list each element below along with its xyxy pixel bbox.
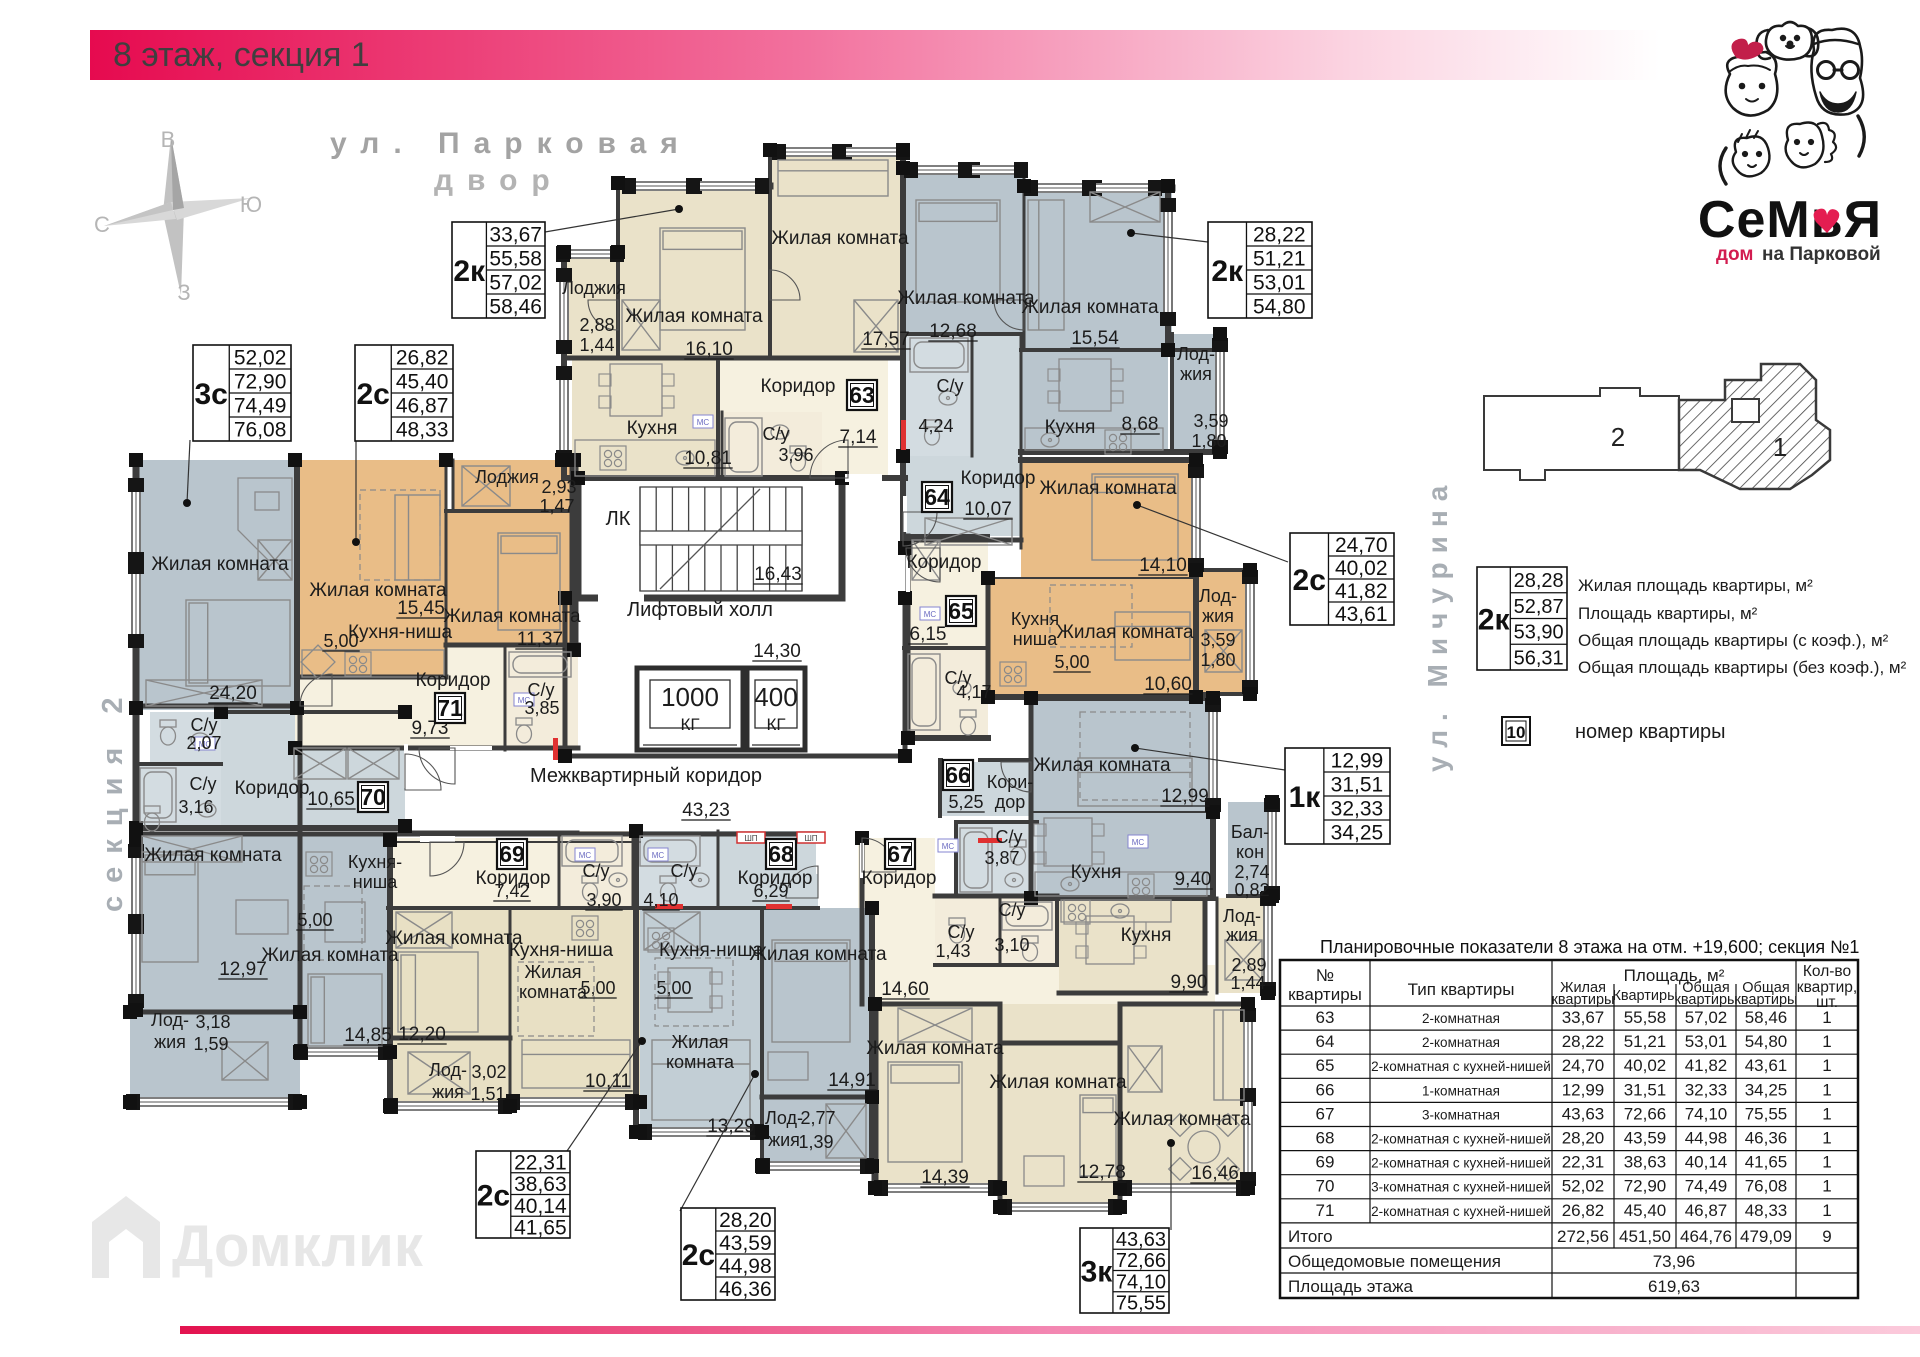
svg-text:Жилая комната: Жилая комната [1033, 755, 1171, 776]
svg-text:№: № [1316, 966, 1334, 985]
svg-text:комната: комната [519, 982, 588, 1002]
svg-text:Кори-: Кори- [987, 772, 1034, 792]
svg-text:1: 1 [1822, 1080, 1831, 1099]
svg-text:СеМьЯ: СеМьЯ [1698, 191, 1882, 249]
svg-text:46,87: 46,87 [1685, 1201, 1728, 1220]
svg-text:52,02: 52,02 [1562, 1177, 1605, 1196]
svg-text:68: 68 [1316, 1129, 1335, 1148]
svg-text:Кухня-: Кухня- [348, 852, 402, 872]
svg-text:10: 10 [1507, 723, 1526, 742]
svg-text:Лод-: Лод- [1177, 344, 1215, 364]
svg-text:Лод-: Лод- [429, 1060, 467, 1080]
svg-text:17,57: 17,57 [862, 329, 910, 350]
svg-text:41,82: 41,82 [1335, 580, 1388, 603]
svg-text:65: 65 [1316, 1056, 1335, 1075]
svg-text:5,00: 5,00 [1054, 652, 1089, 672]
svg-text:С/у: С/у [999, 900, 1026, 920]
svg-text:5,00: 5,00 [297, 910, 332, 930]
svg-text:Кухня-ниша: Кухня-ниша [659, 940, 764, 961]
svg-text:3,59: 3,59 [1200, 630, 1235, 650]
svg-text:3-комнатная с кухней-нишей: 3-комнатная с кухней-нишей [1371, 1180, 1551, 1195]
svg-text:жия: жия [1180, 364, 1212, 384]
svg-text:Коридор: Коридор [960, 468, 1035, 489]
svg-text:Коридор: Коридор [861, 868, 936, 889]
svg-text:63: 63 [849, 382, 875, 408]
svg-text:28,20: 28,20 [719, 1209, 772, 1232]
svg-text:65: 65 [948, 598, 974, 624]
svg-text:31,51: 31,51 [1331, 774, 1384, 797]
svg-text:жия: жия [1202, 606, 1234, 626]
svg-text:67: 67 [1316, 1104, 1335, 1123]
svg-text:1,39: 1,39 [798, 1132, 833, 1152]
svg-text:1,80: 1,80 [1191, 431, 1226, 451]
svg-text:Квартиры: Квартиры [1612, 988, 1677, 1004]
svg-text:КГ: КГ [680, 715, 699, 734]
svg-text:3с: 3с [194, 378, 227, 411]
svg-text:1: 1 [1822, 1104, 1831, 1123]
svg-text:Жилая комната: Жилая комната [897, 288, 1035, 309]
svg-text:кон: кон [1236, 842, 1264, 862]
svg-text:43,63: 43,63 [1116, 1229, 1166, 1251]
svg-text:14,30: 14,30 [753, 641, 801, 662]
svg-text:Коридор: Коридор [234, 778, 309, 799]
svg-text:1: 1 [1822, 1129, 1831, 1148]
svg-text:28,28: 28,28 [1514, 570, 1564, 592]
svg-text:75,55: 75,55 [1116, 1293, 1166, 1315]
svg-text:1: 1 [1822, 1177, 1831, 1196]
svg-text:10,60: 10,60 [1144, 674, 1192, 695]
svg-text:40,02: 40,02 [1624, 1056, 1667, 1075]
svg-text:С/у: С/у [996, 827, 1023, 847]
svg-text:68: 68 [768, 841, 794, 867]
svg-text:Жилая комната: Жилая комната [443, 606, 581, 627]
svg-text:2-комнатная с кухней-нишей: 2-комнатная с кухней-нишей [1371, 1156, 1551, 1171]
svg-text:С/у: С/у [671, 861, 698, 881]
svg-text:1-комнатная: 1-комнатная [1422, 1083, 1500, 1098]
svg-text:1,44: 1,44 [1230, 973, 1265, 993]
svg-text:15,45: 15,45 [397, 598, 445, 619]
svg-text:40,02: 40,02 [1335, 557, 1388, 580]
svg-text:45,40: 45,40 [396, 371, 449, 394]
svg-text:МС: МС [942, 842, 955, 851]
svg-text:2-комнатная с кухней-нишей: 2-комнатная с кухней-нишей [1371, 1059, 1551, 1074]
svg-text:16,10: 16,10 [685, 339, 733, 360]
svg-text:28,20: 28,20 [1562, 1129, 1605, 1148]
svg-text:1,51: 1,51 [470, 1084, 505, 1104]
svg-text:5,00: 5,00 [323, 631, 358, 651]
svg-text:4,24: 4,24 [918, 416, 953, 436]
svg-text:1,59: 1,59 [193, 1034, 228, 1054]
svg-text:71: 71 [437, 695, 463, 721]
svg-text:Лоджия: Лоджия [562, 278, 626, 298]
svg-text:619,63: 619,63 [1648, 1277, 1700, 1296]
svg-text:Жилая: Жилая [525, 962, 582, 982]
svg-text:53,90: 53,90 [1514, 622, 1564, 644]
svg-text:2с: 2с [477, 1179, 510, 1212]
svg-text:41,82: 41,82 [1685, 1056, 1728, 1075]
svg-text:Кол-во: Кол-во [1803, 963, 1851, 980]
svg-text:41,65: 41,65 [514, 1217, 567, 1240]
svg-text:2,88: 2,88 [579, 315, 614, 335]
svg-text:5,00: 5,00 [656, 978, 691, 998]
svg-text:69: 69 [1316, 1153, 1335, 1172]
svg-text:Жилая комната: Жилая комната [1056, 622, 1194, 643]
svg-text:2к: 2к [1478, 603, 1511, 636]
svg-text:12,68: 12,68 [929, 321, 977, 342]
svg-text:70: 70 [1316, 1177, 1335, 1196]
svg-text:44,98: 44,98 [1685, 1129, 1728, 1148]
svg-text:2,77: 2,77 [800, 1108, 835, 1128]
svg-text:32,33: 32,33 [1685, 1080, 1728, 1099]
svg-text:7,42: 7,42 [494, 881, 529, 901]
svg-text:МС: МС [1132, 838, 1145, 847]
svg-text:43,61: 43,61 [1745, 1056, 1788, 1075]
svg-text:12,78: 12,78 [1078, 1162, 1126, 1183]
svg-text:1000: 1000 [661, 682, 719, 712]
svg-text:ЛК: ЛК [606, 508, 631, 530]
svg-text:С/у: С/у [937, 376, 964, 396]
svg-text:3,16: 3,16 [178, 797, 213, 817]
svg-text:квартиры: квартиры [1288, 985, 1362, 1004]
svg-text:Жилая комната: Жилая комната [771, 228, 909, 249]
svg-text:С/у: С/у [763, 424, 790, 444]
svg-text:75,55: 75,55 [1745, 1104, 1788, 1123]
svg-text:секция 2: секция 2 [97, 684, 129, 912]
svg-text:14,60: 14,60 [881, 979, 929, 1000]
svg-text:53,01: 53,01 [1685, 1032, 1728, 1051]
svg-text:70: 70 [360, 784, 386, 810]
svg-text:41,65: 41,65 [1745, 1153, 1788, 1172]
svg-text:2: 2 [1611, 422, 1625, 452]
svg-text:Бал-: Бал- [1231, 822, 1269, 842]
svg-text:48,33: 48,33 [396, 419, 449, 442]
svg-text:31,51: 31,51 [1624, 1080, 1667, 1099]
svg-text:Кухня: Кухня [627, 418, 678, 439]
svg-text:34,25: 34,25 [1331, 822, 1384, 845]
svg-text:номер квартиры: номер квартиры [1575, 721, 1726, 743]
svg-text:3,87: 3,87 [984, 848, 1019, 868]
svg-text:3,96: 3,96 [778, 445, 813, 465]
svg-text:Планировочные показатели 8 эта: Планировочные показатели 8 этажа на отм.… [1320, 937, 1859, 957]
svg-text:10,81: 10,81 [684, 448, 732, 469]
svg-text:1: 1 [1822, 1032, 1831, 1051]
svg-text:5,00: 5,00 [580, 978, 615, 998]
svg-text:63: 63 [1316, 1008, 1335, 1027]
svg-text:ул. Мичурина: ул. Мичурина [1422, 477, 1453, 772]
svg-text:14,91: 14,91 [828, 1070, 876, 1091]
svg-text:14,85: 14,85 [344, 1025, 392, 1046]
svg-text:2,74: 2,74 [1234, 862, 1269, 882]
svg-text:72,66: 72,66 [1116, 1250, 1166, 1272]
svg-text:4,17: 4,17 [956, 682, 991, 702]
svg-text:8,68: 8,68 [1122, 414, 1159, 435]
svg-text:72,90: 72,90 [1624, 1177, 1667, 1196]
svg-text:34,25: 34,25 [1745, 1080, 1788, 1099]
svg-text:ниша: ниша [353, 872, 398, 892]
svg-text:Жилая комната: Жилая комната [866, 1038, 1004, 1059]
svg-text:43,23: 43,23 [682, 800, 730, 821]
svg-text:10,07: 10,07 [964, 499, 1012, 520]
svg-text:9,40: 9,40 [1175, 869, 1212, 890]
svg-text:16,43: 16,43 [754, 564, 802, 585]
svg-text:40,14: 40,14 [1685, 1153, 1728, 1172]
svg-text:12,99: 12,99 [1161, 786, 1209, 807]
svg-text:Жилая комната: Жилая комната [261, 945, 399, 966]
svg-text:Кухня-ниша: Кухня-ниша [509, 940, 614, 961]
svg-text:Коридор: Коридор [760, 376, 835, 397]
svg-text:1,43: 1,43 [935, 941, 970, 961]
svg-text:451,50: 451,50 [1619, 1227, 1671, 1246]
svg-text:Ю: Ю [240, 192, 262, 217]
svg-text:Жилая комната: Жилая комната [151, 554, 289, 575]
svg-text:38,63: 38,63 [1624, 1153, 1667, 1172]
svg-text:С/у: С/у [191, 715, 218, 735]
svg-text:Жилая комната: Жилая комната [1039, 478, 1177, 499]
svg-text:5,25: 5,25 [948, 792, 983, 812]
svg-text:1,47: 1,47 [539, 496, 574, 516]
svg-text:22,31: 22,31 [1562, 1153, 1605, 1172]
svg-text:10,11: 10,11 [585, 1071, 631, 1092]
svg-text:54,80: 54,80 [1253, 296, 1306, 319]
svg-text:71: 71 [1316, 1201, 1335, 1220]
svg-text:3,10: 3,10 [994, 935, 1029, 955]
svg-text:2с: 2с [682, 1239, 715, 1272]
svg-text:Кухня: Кухня [1045, 417, 1096, 438]
svg-text:33,67: 33,67 [489, 224, 542, 247]
svg-text:26,82: 26,82 [396, 347, 449, 370]
svg-text:комната: комната [666, 1052, 735, 1072]
svg-text:64: 64 [924, 484, 950, 510]
svg-text:12,99: 12,99 [1331, 750, 1384, 773]
svg-text:74,10: 74,10 [1685, 1104, 1728, 1123]
svg-text:Домклик: Домклик [172, 1214, 424, 1279]
svg-text:58,46: 58,46 [1745, 1008, 1788, 1027]
svg-text:1,80: 1,80 [1200, 650, 1235, 670]
svg-text:Тип квартиры: Тип квартиры [1408, 980, 1515, 999]
svg-text:54,80: 54,80 [1745, 1032, 1788, 1051]
svg-text:66: 66 [945, 762, 971, 788]
svg-text:квартиры: квартиры [1735, 992, 1798, 1008]
svg-text:МС: МС [652, 851, 665, 860]
svg-text:57,02: 57,02 [489, 272, 542, 295]
svg-text:67: 67 [887, 841, 913, 867]
svg-text:74,49: 74,49 [1685, 1177, 1728, 1196]
svg-text:43,59: 43,59 [719, 1232, 772, 1255]
svg-text:464,76: 464,76 [1680, 1227, 1732, 1246]
svg-text:Лод-: Лод- [1199, 586, 1237, 606]
svg-text:44,98: 44,98 [719, 1255, 772, 1278]
svg-text:14,39: 14,39 [921, 1167, 969, 1188]
svg-text:58,46: 58,46 [489, 296, 542, 319]
svg-text:64: 64 [1316, 1032, 1335, 1051]
svg-text:76,08: 76,08 [1745, 1177, 1788, 1196]
svg-text:Коридор: Коридор [906, 552, 981, 573]
svg-text:11,37: 11,37 [517, 629, 563, 650]
svg-text:Общая площадь квартиры (без ко: Общая площадь квартиры (без коэф.), м² [1578, 658, 1907, 677]
svg-text:40,14: 40,14 [514, 1195, 567, 1218]
svg-text:жия: жия [1226, 925, 1258, 945]
svg-text:28,22: 28,22 [1562, 1032, 1605, 1051]
svg-text:2,07: 2,07 [186, 733, 221, 753]
svg-text:двор: двор [434, 164, 564, 197]
svg-text:Жилая площадь квартиры, м²: Жилая площадь квартиры, м² [1578, 576, 1813, 595]
svg-text:51,21: 51,21 [1624, 1032, 1667, 1051]
svg-text:45,40: 45,40 [1624, 1201, 1667, 1220]
svg-text:2,89: 2,89 [1231, 955, 1266, 975]
svg-text:12,97: 12,97 [219, 959, 267, 980]
svg-text:74,49: 74,49 [234, 395, 287, 418]
svg-text:400: 400 [754, 682, 797, 712]
svg-text:8 этаж, секция 1: 8 этаж, секция 1 [113, 36, 370, 74]
svg-text:12,99: 12,99 [1562, 1080, 1605, 1099]
svg-text:7,14: 7,14 [840, 427, 877, 448]
svg-text:38,63: 38,63 [514, 1173, 567, 1196]
svg-text:9,90: 9,90 [1171, 972, 1208, 993]
svg-text:Лод-: Лод- [765, 1108, 803, 1128]
svg-text:66: 66 [1316, 1080, 1335, 1099]
svg-text:33,67: 33,67 [1562, 1008, 1605, 1027]
svg-text:жия: жия [768, 1130, 800, 1150]
svg-text:32,33: 32,33 [1331, 798, 1384, 821]
svg-text:15,54: 15,54 [1071, 328, 1119, 349]
svg-text:Жилая комната: Жилая комната [989, 1072, 1127, 1093]
svg-text:Жилая: Жилая [672, 1032, 729, 1052]
svg-text:Итого: Итого [1288, 1227, 1333, 1246]
svg-text:10,65: 10,65 [307, 789, 355, 810]
svg-text:6,29: 6,29 [753, 881, 788, 901]
svg-text:С/у: С/у [583, 861, 610, 881]
svg-text:43,59: 43,59 [1624, 1129, 1667, 1148]
svg-text:1,44: 1,44 [579, 335, 614, 355]
svg-text:Общая площадь квартиры (с коэф: Общая площадь квартиры (с коэф.), м² [1578, 631, 1889, 650]
svg-text:53,01: 53,01 [1253, 272, 1306, 295]
svg-text:С/у: С/у [190, 774, 217, 794]
svg-text:ШП: ШП [804, 834, 817, 843]
svg-text:46,36: 46,36 [719, 1278, 772, 1301]
svg-text:жия: жия [154, 1032, 186, 1052]
svg-text:24,20: 24,20 [209, 683, 257, 704]
svg-text:24,70: 24,70 [1335, 534, 1388, 557]
svg-text:Жилая комната: Жилая комната [749, 944, 887, 965]
svg-text:дор: дор [995, 792, 1026, 812]
svg-text:Коридор: Коридор [415, 670, 490, 691]
svg-text:3к: 3к [1081, 1255, 1114, 1288]
svg-text:0,82: 0,82 [1234, 880, 1269, 900]
svg-text:2-комнатная: 2-комнатная [1422, 1035, 1500, 1050]
svg-text:1: 1 [1822, 1201, 1831, 1220]
svg-text:1: 1 [1773, 432, 1787, 462]
svg-text:МС: МС [579, 851, 592, 860]
svg-text:Лифтовый холл: Лифтовый холл [627, 599, 773, 621]
svg-text:2-комнатная с кухней-нишей: 2-комнатная с кухней-нишей [1371, 1204, 1551, 1219]
svg-text:Кухня: Кухня [1071, 862, 1122, 883]
svg-text:51,21: 51,21 [1253, 248, 1306, 271]
svg-text:Межквартирный коридор: Межквартирный коридор [530, 765, 762, 787]
svg-text:Площадь этажа: Площадь этажа [1288, 1277, 1413, 1296]
svg-text:2-комнатная с кухней-нишей: 2-комнатная с кухней-нишей [1371, 1132, 1551, 1147]
svg-text:ниша: ниша [1013, 629, 1058, 649]
svg-text:72,66: 72,66 [1624, 1104, 1667, 1123]
svg-text:4,10: 4,10 [643, 890, 678, 910]
svg-text:С/у: С/у [948, 922, 975, 942]
svg-text:55,58: 55,58 [489, 248, 542, 271]
svg-text:ул. Парковая: ул. Парковая [330, 127, 692, 160]
svg-text:52,02: 52,02 [234, 347, 287, 370]
svg-text:73,96: 73,96 [1653, 1252, 1696, 1271]
svg-text:Общедомовые помещения: Общедомовые помещения [1288, 1252, 1501, 1271]
svg-text:С/у: С/у [528, 680, 555, 700]
svg-text:МС: МС [924, 610, 937, 619]
svg-text:Кухня-ниша: Кухня-ниша [348, 622, 453, 643]
svg-text:2к: 2к [453, 255, 486, 288]
svg-text:Лод-: Лод- [1223, 906, 1261, 926]
svg-text:1к: 1к [1289, 781, 1322, 814]
svg-text:3,18: 3,18 [195, 1012, 230, 1032]
svg-text:квартиры: квартиры [1552, 992, 1615, 1008]
svg-text:56,31: 56,31 [1514, 647, 1564, 669]
svg-text:26,82: 26,82 [1562, 1201, 1605, 1220]
svg-text:14,10: 14,10 [1139, 555, 1187, 576]
svg-text:2-комнатная: 2-комнатная [1422, 1011, 1500, 1026]
svg-text:Лод-: Лод- [151, 1010, 189, 1030]
svg-text:ШП: ШП [744, 834, 757, 843]
svg-text:дом: дом [1716, 244, 1753, 265]
svg-text:Жилая комната: Жилая комната [625, 306, 763, 327]
svg-text:43,63: 43,63 [1562, 1104, 1605, 1123]
svg-text:Жилая комната: Жилая комната [144, 845, 282, 866]
svg-text:Жилая комната: Жилая комната [1113, 1109, 1251, 1130]
svg-text:на Парковой: на Парковой [1762, 244, 1881, 265]
svg-text:76,08: 76,08 [234, 419, 287, 442]
svg-text:22,31: 22,31 [514, 1151, 567, 1174]
svg-text:72,90: 72,90 [234, 371, 287, 394]
svg-text:3,85: 3,85 [524, 698, 559, 718]
svg-text:12,20: 12,20 [398, 1024, 446, 1045]
svg-text:3,02: 3,02 [471, 1062, 506, 1082]
svg-text:С: С [94, 212, 110, 237]
svg-text:6,15: 6,15 [910, 624, 947, 645]
svg-text:Кухня: Кухня [1121, 925, 1172, 946]
svg-text:1: 1 [1822, 1153, 1831, 1172]
svg-text:Жилая комната: Жилая комната [385, 928, 523, 949]
svg-text:Площадь квартиры, м²: Площадь квартиры, м² [1578, 604, 1758, 623]
svg-text:жия: жия [432, 1082, 464, 1102]
svg-text:Лоджия: Лоджия [475, 467, 539, 487]
svg-text:52,87: 52,87 [1514, 596, 1564, 618]
svg-text:2к: 2к [1211, 255, 1244, 288]
svg-text:43,61: 43,61 [1335, 603, 1388, 626]
svg-text:69: 69 [499, 841, 525, 867]
svg-text:3-комнатная: 3-комнатная [1422, 1107, 1500, 1122]
svg-text:1: 1 [1822, 1008, 1831, 1027]
svg-text:Кухня: Кухня [1011, 609, 1059, 629]
svg-text:46,87: 46,87 [396, 395, 449, 418]
svg-text:3,59: 3,59 [1193, 411, 1228, 431]
svg-text:МС: МС [697, 418, 710, 427]
svg-text:З: З [177, 280, 190, 305]
svg-text:квартиры: квартиры [1675, 992, 1738, 1008]
svg-text:74,10: 74,10 [1116, 1271, 1166, 1293]
svg-text:28,22: 28,22 [1253, 224, 1306, 247]
svg-text:24,70: 24,70 [1562, 1056, 1605, 1075]
svg-text:55,58: 55,58 [1624, 1008, 1667, 1027]
svg-text:2,93: 2,93 [541, 477, 576, 497]
svg-text:13,29: 13,29 [707, 1116, 755, 1137]
svg-text:479,09: 479,09 [1740, 1227, 1792, 1246]
svg-text:46,36: 46,36 [1745, 1129, 1788, 1148]
svg-text:57,02: 57,02 [1685, 1008, 1728, 1027]
svg-text:КГ: КГ [766, 715, 785, 734]
